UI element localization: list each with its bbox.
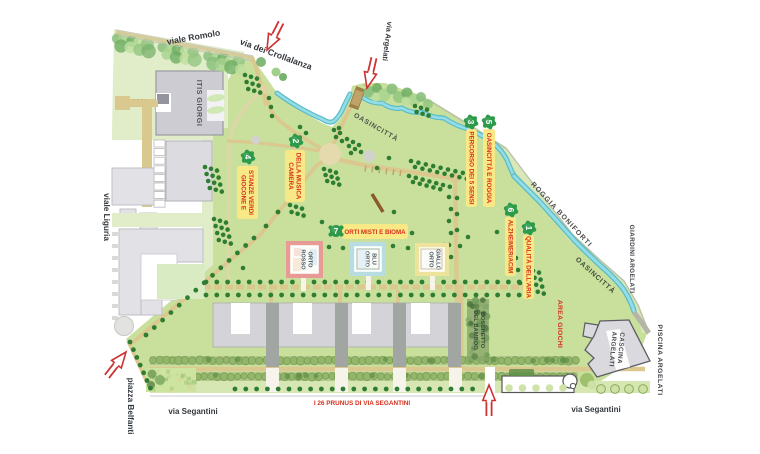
svg-text:CAMERA: CAMERA bbox=[287, 162, 294, 190]
svg-text:GIARDINI ARGELATI: GIARDINI ARGELATI bbox=[628, 225, 635, 294]
svg-text:GIOCONE E: GIOCONE E bbox=[240, 175, 247, 210]
svg-text:PERCORSO DEI 5 SENSI: PERCORSO DEI 5 SENSI bbox=[467, 132, 474, 205]
svg-text:ORTO: ORTO bbox=[428, 251, 434, 268]
svg-text:ORTI MISTI E BIOMA: ORTI MISTI E BIOMA bbox=[344, 229, 406, 236]
svg-text:ITIS GIORGI: ITIS GIORGI bbox=[195, 80, 204, 127]
svg-text:I 26 PRUNUS DI VIA SEGANTINI: I 26 PRUNUS DI VIA SEGANTINI bbox=[314, 400, 411, 407]
svg-text:PISCINA ARGELATI: PISCINA ARGELATI bbox=[656, 324, 663, 395]
svg-text:OASINCITTÀ E ROGGIA: OASINCITTÀ E ROGGIA bbox=[485, 133, 492, 204]
svg-text:ALZHEIMER/ACIM: ALZHEIMER/ACIM bbox=[506, 220, 513, 274]
svg-text:DELLA MUSICA: DELLA MUSICA bbox=[295, 153, 302, 200]
svg-text:2: 2 bbox=[291, 139, 300, 144]
svg-text:via Segantini: via Segantini bbox=[571, 405, 620, 414]
svg-text:viale Liguria: viale Liguria bbox=[102, 193, 111, 241]
svg-text:7: 7 bbox=[334, 227, 339, 236]
svg-text:piazza Belfanti: piazza Belfanti bbox=[126, 378, 135, 435]
svg-text:1: 1 bbox=[524, 226, 533, 231]
svg-text:BOSCHETTO: BOSCHETTO bbox=[479, 312, 485, 349]
svg-text:6: 6 bbox=[506, 208, 515, 213]
svg-text:QUALITÀ DELL’ARIA: QUALITÀ DELL’ARIA bbox=[524, 236, 531, 298]
svg-text:ROSSO: ROSSO bbox=[300, 249, 306, 270]
svg-text:GIALLO: GIALLO bbox=[435, 249, 441, 271]
svg-text:via Segantini: via Segantini bbox=[168, 407, 217, 416]
svg-text:AREA GIOCHI: AREA GIOCHI bbox=[556, 300, 563, 348]
svg-text:BLU: BLU bbox=[371, 253, 377, 265]
svg-text:DEL BAMBOO: DEL BAMBOO bbox=[472, 310, 478, 350]
svg-text:STANZE VERDI: STANZE VERDI bbox=[247, 170, 254, 215]
svg-text:3: 3 bbox=[466, 120, 475, 125]
svg-text:4: 4 bbox=[243, 155, 252, 160]
svg-text:ORTO: ORTO bbox=[307, 251, 313, 268]
svg-text:5: 5 bbox=[484, 120, 493, 125]
